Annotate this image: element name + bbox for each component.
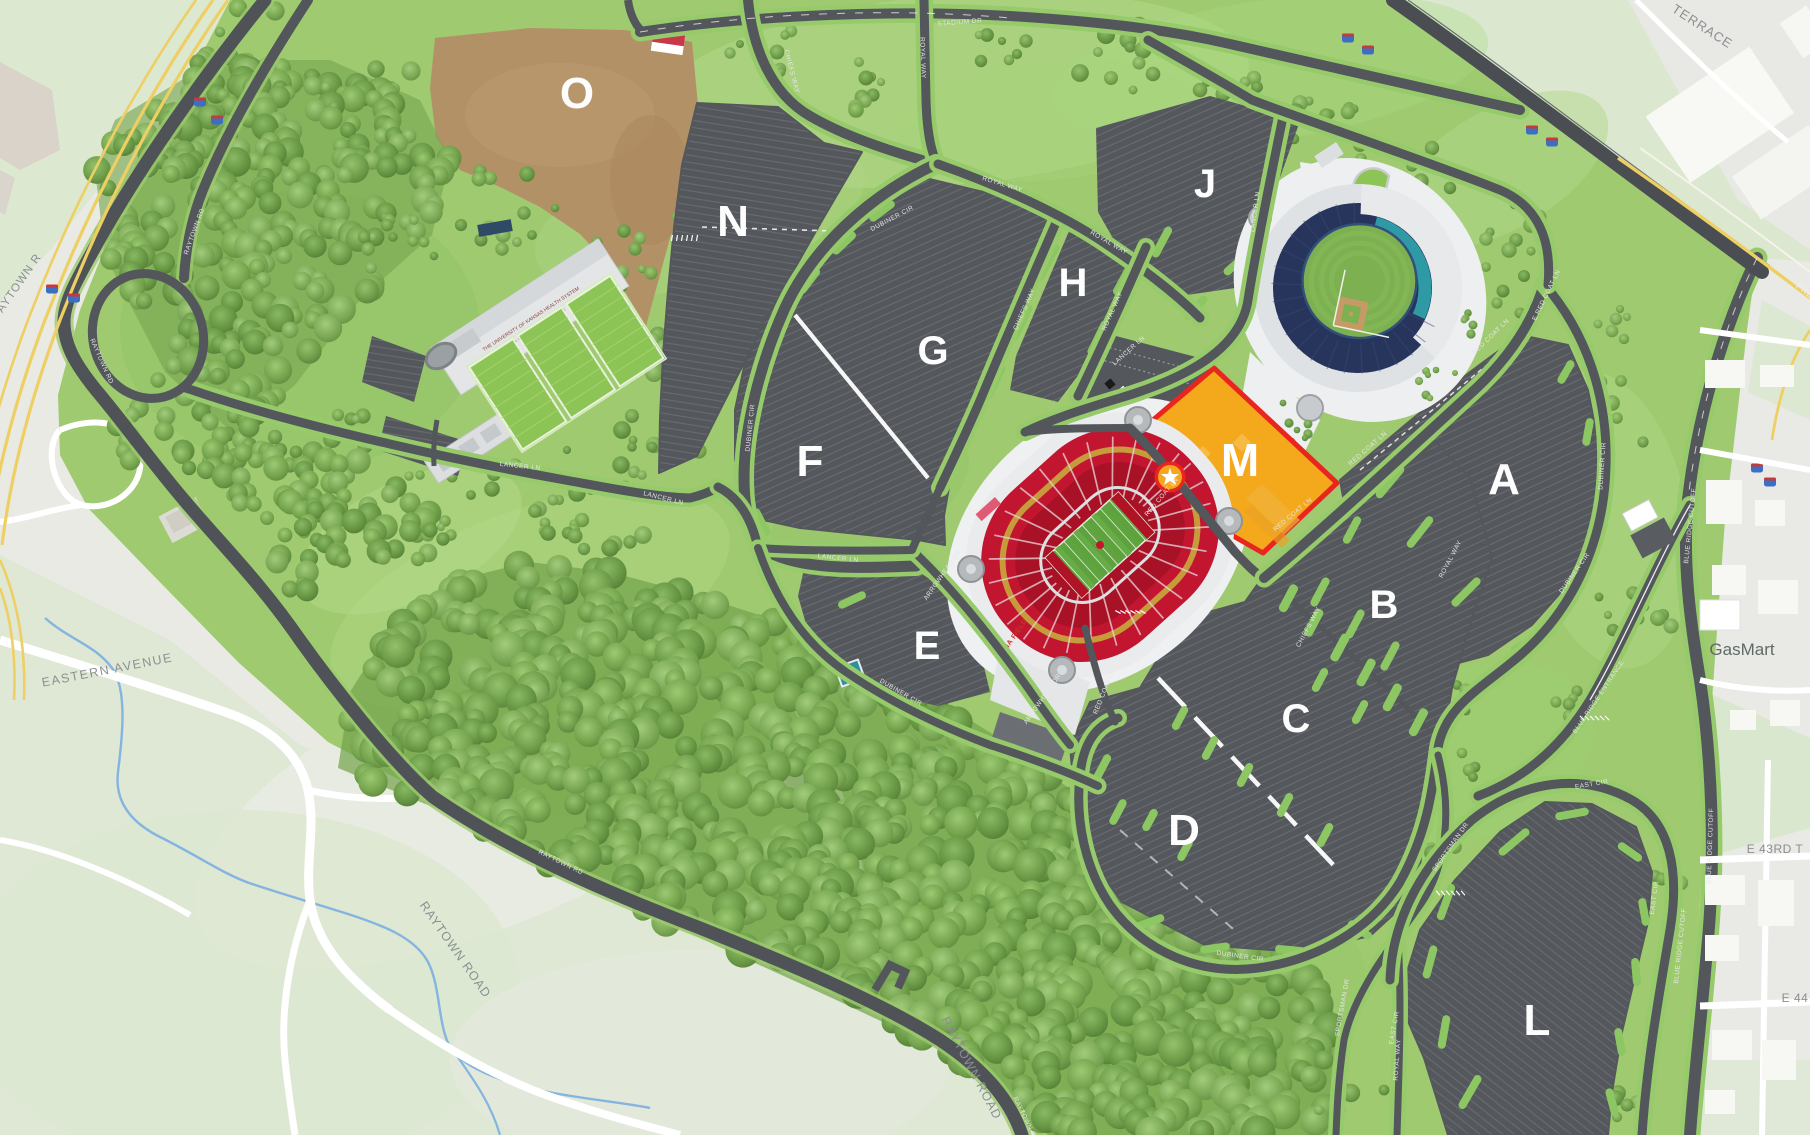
svg-text:ROYAL WAY: ROYAL WAY [918,37,926,79]
svg-text:H: H [1059,261,1088,305]
svg-text:L: L [1524,996,1551,1045]
svg-text:E 43RD T: E 43RD T [1747,842,1804,856]
svg-text:E 44: E 44 [1782,991,1809,1005]
svg-text:J: J [1194,162,1216,206]
svg-text:F: F [797,437,824,486]
svg-text:M: M [1221,434,1259,486]
svg-text:B: B [1370,583,1399,627]
svg-text:C: C [1282,697,1311,741]
svg-text:E: E [914,624,941,668]
svg-text:A: A [1488,455,1520,504]
svg-text:D: D [1168,806,1200,855]
svg-text:N: N [717,197,749,246]
svg-text:O: O [560,69,594,118]
svg-text:G: G [917,329,948,373]
svg-text:GasMart: GasMart [1709,640,1774,659]
